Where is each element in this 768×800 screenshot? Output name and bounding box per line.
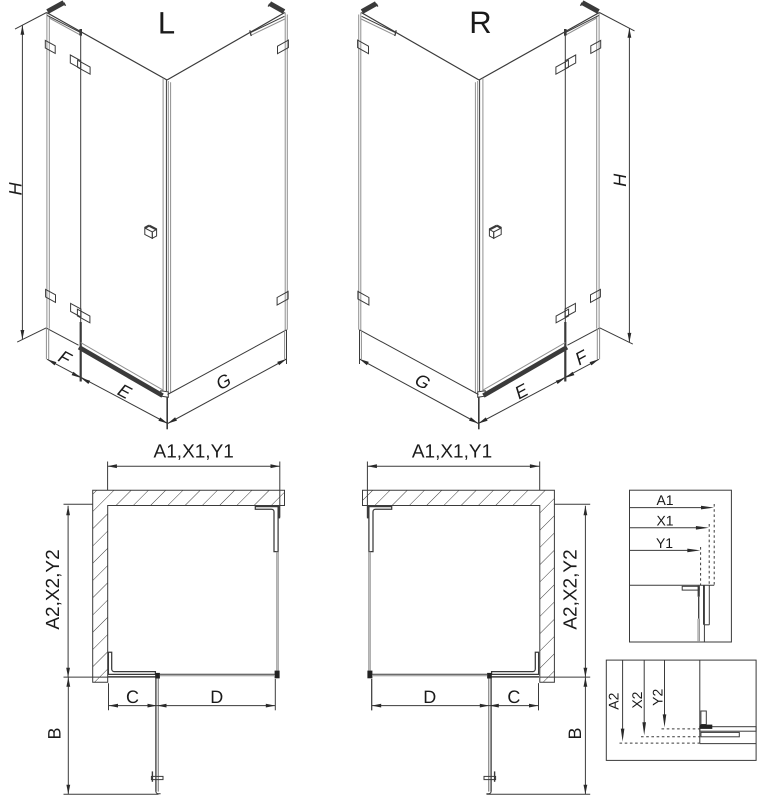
- svg-text:C: C: [507, 687, 520, 707]
- svg-text:F: F: [55, 346, 75, 369]
- svg-text:C: C: [126, 687, 139, 707]
- svg-text:Y2: Y2: [650, 689, 666, 706]
- svg-text:G: G: [412, 370, 434, 394]
- svg-text:H: H: [6, 181, 26, 195]
- svg-text:A2: A2: [606, 692, 622, 709]
- svg-text:A1,X1,Y1: A1,X1,Y1: [412, 442, 492, 463]
- svg-text:F: F: [572, 346, 592, 369]
- svg-text:E: E: [511, 379, 532, 403]
- svg-text:A1,X1,Y1: A1,X1,Y1: [154, 442, 234, 463]
- svg-text:E: E: [114, 380, 135, 404]
- svg-text:X2: X2: [629, 691, 645, 708]
- svg-text:R: R: [469, 5, 491, 40]
- svg-text:B: B: [45, 727, 65, 739]
- svg-text:A1: A1: [656, 492, 673, 508]
- svg-text:A2,X2,Y2: A2,X2,Y2: [560, 549, 581, 629]
- svg-text:Y1: Y1: [656, 535, 673, 551]
- svg-text:D: D: [210, 687, 223, 707]
- svg-text:A2,X2,Y2: A2,X2,Y2: [43, 549, 64, 629]
- svg-text:G: G: [213, 370, 235, 394]
- svg-text:D: D: [423, 687, 436, 707]
- svg-text:X1: X1: [656, 513, 673, 529]
- svg-text:B: B: [565, 727, 585, 739]
- svg-text:L: L: [158, 5, 175, 40]
- svg-text:H: H: [610, 173, 630, 187]
